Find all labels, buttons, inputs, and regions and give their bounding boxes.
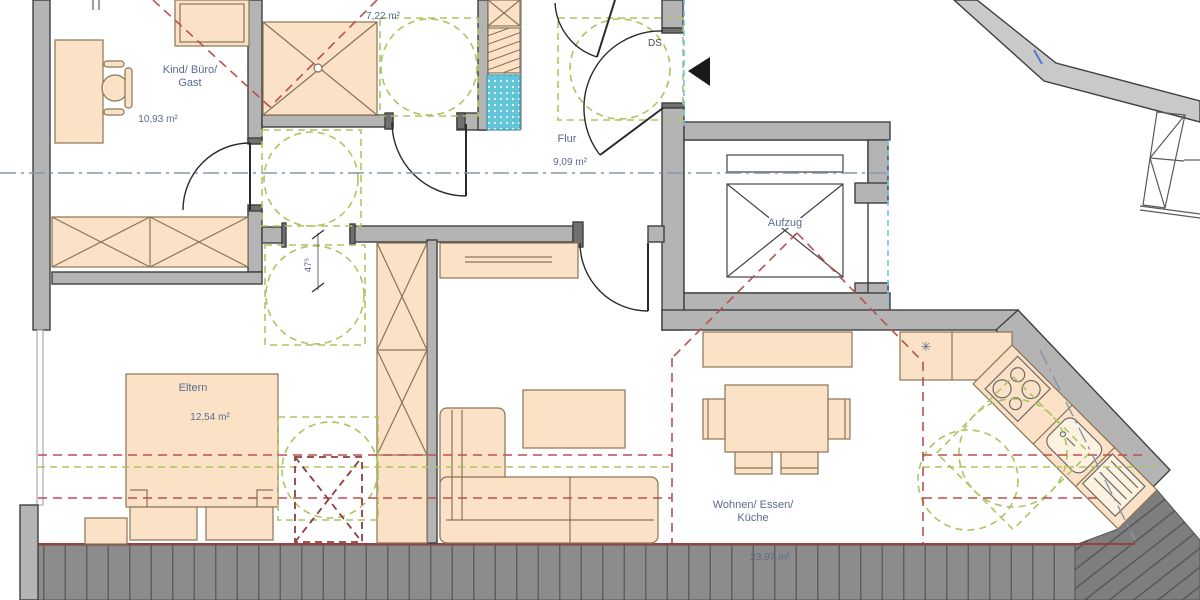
wall-left-bottom-post (20, 505, 38, 600)
dining-table (725, 385, 828, 452)
kind-room-area: 10,93 m² (138, 114, 178, 125)
pillow-left (130, 507, 197, 540)
door-living (580, 243, 648, 311)
pillow-right (206, 507, 273, 540)
entrance-arrow-icon (688, 57, 710, 86)
chair-bottom-1 (735, 452, 772, 474)
wall-wohnen-top (662, 310, 1018, 330)
coffee-table (523, 390, 625, 448)
wall-elevator-right-upper (868, 140, 888, 185)
door-kind (183, 143, 250, 210)
wohnen-label-1: Wohnen/ Essen/ (713, 499, 794, 511)
flur-area: 9,09 m² (553, 157, 588, 168)
eltern-area: 12,54 m² (190, 412, 230, 423)
elevator-jamb-upper (855, 183, 888, 203)
wall-kind-stub (248, 210, 262, 272)
exterior-stairs (1140, 112, 1200, 218)
wall-kind-bath (248, 0, 262, 143)
flur-label: Flur (558, 133, 577, 145)
wall-stub-protrusion (262, 227, 282, 243)
chair-left (703, 399, 725, 439)
eltern-label: Eltern (179, 382, 208, 394)
bathtub (487, 75, 520, 130)
decking-strip (38, 545, 1138, 600)
door-apartment-entrance (584, 31, 663, 155)
wall-left-outer (33, 0, 50, 330)
wall-flur-top (662, 0, 683, 28)
jamb-entrance-top (662, 28, 683, 33)
wall-diagonal-top-right (954, 0, 1200, 122)
door-bath (392, 122, 466, 196)
wall-elevator-top (684, 122, 890, 140)
aufzug-label: Aufzug (768, 217, 802, 229)
dining-set (703, 385, 850, 474)
roof-window-marker (295, 457, 362, 542)
chair-bottom-2 (781, 452, 818, 474)
wall-living-cap-left (350, 224, 355, 244)
wardrobe-strip (52, 217, 248, 267)
ds-label: DS (648, 38, 662, 49)
wall-bath-bottom-a (262, 115, 393, 127)
wohnen-area: 23,97 m² (750, 552, 790, 563)
jamb-entrance-bottom (662, 103, 684, 108)
wall-lobby-left (662, 108, 684, 330)
kind-room-label-1: Kind/ Büro/ (163, 64, 218, 76)
door-dimension: 47⁵ (303, 230, 324, 292)
nightstand (85, 518, 127, 544)
cabinet-top (175, 0, 249, 46)
office-chair (102, 61, 132, 115)
wohnen-label-2: Küche (737, 512, 768, 524)
kind-room-label-2: Gast (178, 77, 201, 89)
wall-below-wardrobe (52, 272, 262, 284)
shower (263, 22, 377, 115)
radiator (488, 28, 520, 73)
door-top-entrance (555, 0, 615, 57)
hob-symbol-icon: ✳ (921, 339, 932, 354)
wall-living-top (350, 226, 573, 242)
desk (55, 40, 103, 143)
window-left (37, 330, 43, 505)
chair-right (828, 399, 850, 439)
kitchen-counter-a (703, 332, 852, 367)
floorplan-canvas: 47⁵ Kind/ Büro/ Gast 10,93 m² 7,22 m² Fl… (0, 0, 1200, 600)
door-dimension-label: 47⁵ (303, 258, 314, 273)
bath-fixtures (487, 0, 520, 130)
sideboard (440, 243, 578, 278)
bath-area: 7,22 m² (366, 11, 401, 22)
wall-stub-door (648, 226, 664, 242)
floorplan-drawing: 47⁵ Kind/ Büro/ Gast 10,93 m² 7,22 m² Fl… (0, 0, 1200, 600)
bed (126, 374, 278, 540)
